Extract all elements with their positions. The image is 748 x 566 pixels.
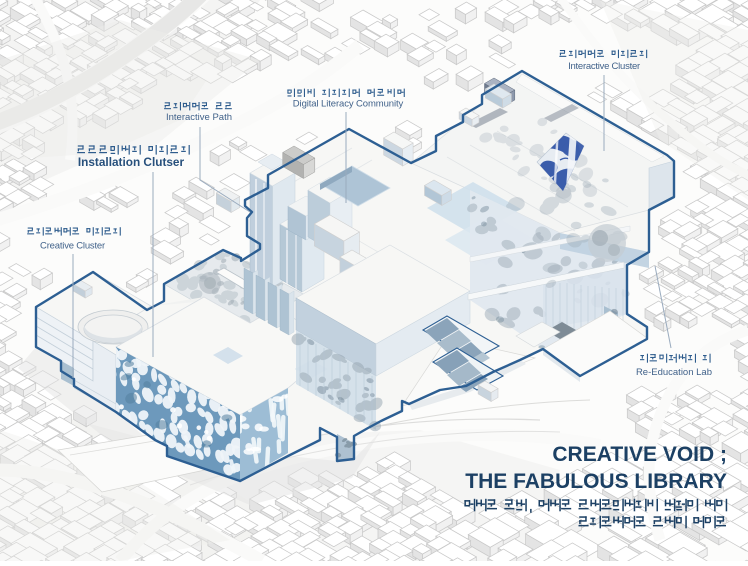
- svg-text:Installation Clutser: Installation Clutser: [78, 155, 185, 169]
- svg-text:Interactive Cluster: Interactive Cluster: [568, 61, 640, 72]
- svg-text:Interactive Path: Interactive Path: [166, 112, 232, 123]
- svg-text:CREATIVE VOID ;: CREATIVE VOID ;: [552, 443, 727, 466]
- svg-text:Re-Education Lab: Re-Education Lab: [636, 367, 712, 378]
- svg-text:THE FABULOUS LIBRARY: THE FABULOUS LIBRARY: [465, 470, 727, 493]
- svg-text:Creative Cluster: Creative Cluster: [40, 241, 105, 252]
- svg-text:Digital Literacy Community: Digital Literacy Community: [293, 99, 404, 110]
